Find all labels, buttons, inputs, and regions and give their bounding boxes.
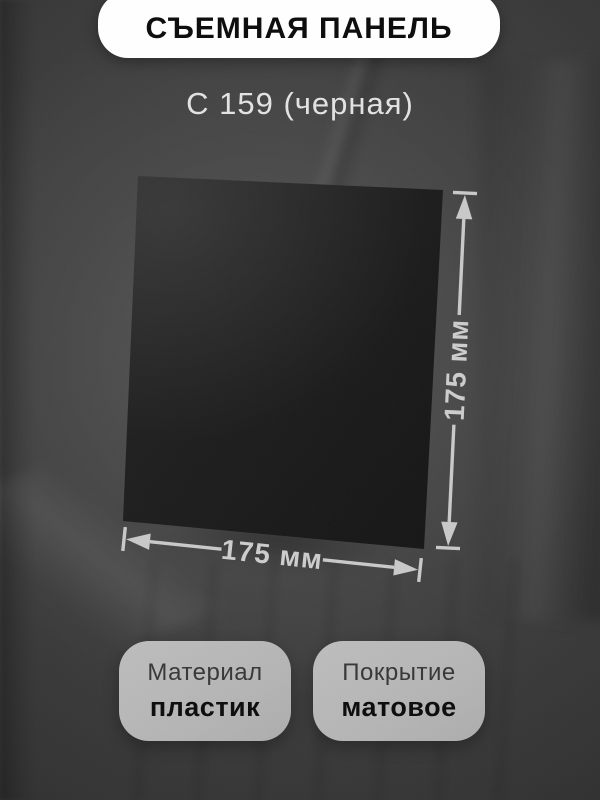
spec-card-material: Материал пластик	[119, 641, 291, 741]
model-subtitle: С 159 (черная)	[0, 86, 600, 122]
fabric-wrinkle	[480, 60, 600, 620]
title-pill: СЪЕМНАЯ ПАНЕЛЬ	[98, 0, 500, 58]
spec-value: матовое	[341, 692, 456, 723]
product-card: СЪЕМНАЯ ПАНЕЛЬ С 159 (черная) 175 мм 175…	[0, 0, 600, 800]
height-dimension-label: 175 мм	[439, 318, 475, 421]
spec-card-coating: Покрытие матовое	[313, 641, 485, 741]
height-dimension-arrow: 175 мм	[436, 192, 477, 548]
spec-label: Материал	[147, 659, 262, 687]
spec-value: пластик	[150, 692, 260, 723]
spec-label: Покрытие	[342, 659, 455, 687]
page-title: СЪЕМНАЯ ПАНЕЛЬ	[145, 4, 452, 46]
